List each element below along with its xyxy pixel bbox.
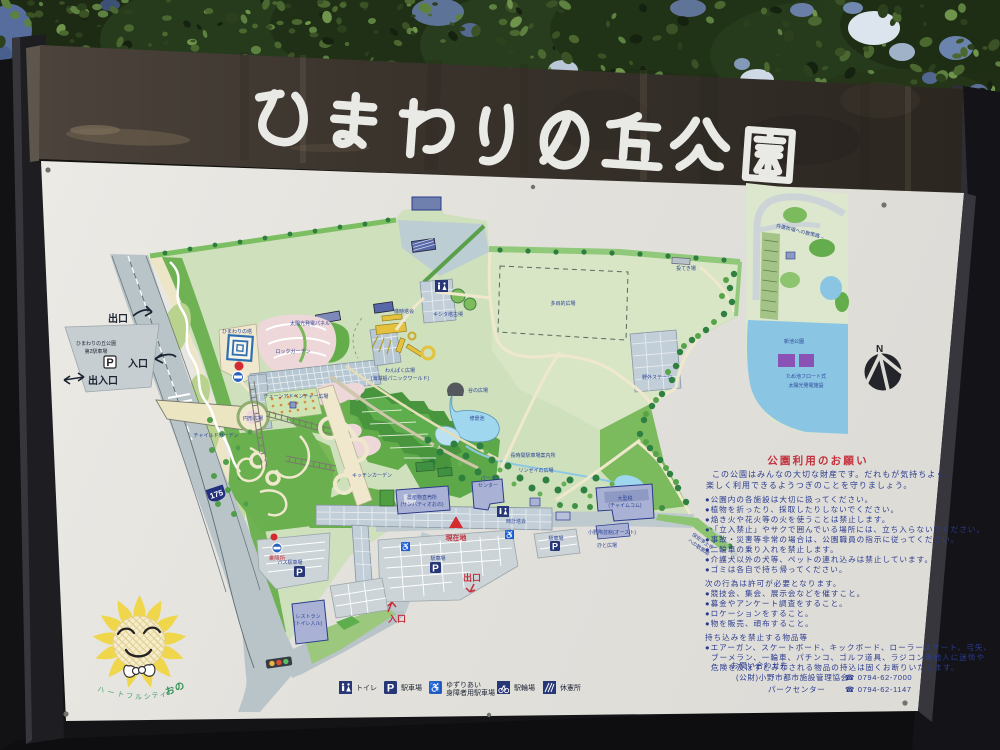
svg-text:チェーンアドベンチャー広場: チェーンアドベンチャー広場 [264, 393, 329, 400]
svg-text:ロックガーデン: ロックガーデン [275, 348, 310, 355]
svg-text:投てき場: 投てき場 [676, 265, 696, 272]
svg-text:円形広場: 円形広場 [243, 415, 263, 422]
svg-text:●ゴミは各自で持ち帰ってください。: ●ゴミは各自で持ち帰ってください。 [705, 564, 847, 574]
svg-text:P: P [296, 568, 303, 579]
svg-text:シ: シ [144, 694, 151, 701]
svg-text:♿: ♿ [429, 681, 441, 694]
svg-text:身障者用駅車場: 身障者用駅車場 [446, 688, 495, 697]
svg-text:この公園はみんなの大切な財産です。だれもが気持ちよく、: この公園はみんなの大切な財産です。だれもが気持ちよく、 [712, 469, 954, 479]
svg-text:●競技会、集会、展示会などを催すこと。: ●競技会、集会、展示会などを催すこと。 [705, 588, 865, 598]
svg-text:駅車場: 駅車場 [548, 535, 563, 542]
svg-text:♿: ♿ [505, 530, 515, 540]
svg-text:レストラン: レストラン [295, 614, 320, 620]
svg-text:P: P [106, 357, 113, 369]
svg-text:ひまわりの塔: ひまわりの塔 [222, 328, 252, 335]
svg-text:出口: 出口 [108, 312, 128, 325]
svg-text:●募金やアンケート調査をすること。: ●募金やアンケート調査をすること。 [705, 598, 848, 608]
svg-text:入口: 入口 [387, 614, 406, 624]
svg-text:●エアーガン、スケートボード、キックボード、ローラースケート: ●エアーガン、スケートボード、キックボード、ローラースケート、弓矢、 [705, 642, 992, 652]
svg-text:P: P [552, 542, 558, 552]
svg-text:●事故・災害等非常の場合は、公園職員の指示に従ってください。: ●事故・災害等非常の場合は、公園職員の指示に従ってください。 [705, 534, 959, 544]
svg-text:●ロケーションをすること。: ●ロケーションをすること。 [705, 609, 814, 618]
svg-text:♿: ♿ [401, 542, 411, 552]
svg-text:楽しく利用できるようつぎのことを守りましょう。: 楽しく利用できるようつぎのことを守りましょう。 [706, 480, 912, 490]
svg-text:刅と広場: 刅と広場 [597, 542, 617, 549]
svg-text:ため池フロート式: ため池フロート式 [786, 373, 826, 380]
svg-text:キシタ塔古堧: キシタ塔古堧 [433, 311, 463, 318]
svg-text:農産物直売所: 農産物直売所 [407, 494, 437, 501]
svg-text:持ち込みを禁止する物品等: 持ち込みを禁止する物品等 [705, 632, 808, 642]
svg-text:小野陶芸館(オースト): 小野陶芸館(オースト) [588, 529, 636, 536]
svg-text:●「立入禁止」やサクで囲んでいる場所には、立ち入らないでくだ: ●「立入禁止」やサクで囲んでいる場所には、立ち入らないでください。 [705, 524, 985, 534]
svg-text:ひまわりの丘公園: ひまわりの丘公園 [76, 340, 116, 347]
svg-text:バス駅車場: バス駅車場 [277, 559, 302, 566]
svg-text:(公財)小野市都市施設管理協会: (公財)小野市都市施設管理協会 [736, 672, 849, 682]
svg-text:入口: 入口 [128, 358, 148, 370]
svg-text:●二輪車の乗り入れを禁止します。: ●二輪車の乗り入れを禁止します。 [705, 544, 839, 554]
svg-text:休憲所: 休憲所 [560, 683, 581, 692]
svg-text:機時塔会: 機時塔会 [394, 308, 414, 315]
svg-text:キッチンカーデン: キッチンカーデン [352, 472, 392, 479]
svg-text:リンゼイの広場: リンゼイの広場 [518, 467, 553, 474]
svg-text:大型税: 大型税 [617, 495, 632, 502]
svg-text:●焔き火や花火等の火を使うことは禁止します。: ●焔き火や花火等の火を使うことは禁止します。 [705, 514, 890, 524]
svg-text:(海賊船パニックワールド): (海賊船パニックワールド) [371, 375, 430, 382]
svg-text:(チャイムコム): (チャイムコム) [608, 503, 642, 509]
svg-text:現在地: 現在地 [446, 533, 467, 542]
svg-text:パークセンター: パークセンター [768, 685, 825, 694]
svg-text:野外ステージ: 野外ステージ [642, 374, 672, 381]
svg-text:第2駅車場: 第2駅車場 [85, 348, 108, 355]
svg-text:パーク: パーク [480, 476, 495, 482]
svg-text:駅輪場: 駅輪場 [514, 683, 535, 692]
svg-text:P: P [387, 683, 394, 695]
svg-text:N: N [876, 344, 883, 355]
svg-text:修景池: 修景池 [469, 415, 484, 422]
svg-text:公園利用のお願い: 公園利用のお願い [767, 454, 869, 467]
svg-text:ト: ト [117, 691, 125, 699]
svg-text:太陽光発電施設: 太陽光発電施設 [788, 382, 823, 389]
svg-text:●物を販売、頑布すること。: ●物を販売、頑布すること。 [705, 618, 814, 628]
svg-text:トイレ: トイレ [356, 685, 377, 692]
svg-text:●介護犬以外の犬等、ペットの連れ込みは禁止しています。: ●介護犬以外の犬等、ペットの連れ込みは禁止しています。 [705, 554, 933, 564]
svg-text:出入口: 出入口 [88, 374, 118, 387]
svg-text:フ: フ [126, 692, 134, 700]
svg-text:お問い合わせ先: お問い合わせ先 [731, 660, 788, 670]
svg-text:わんぱく広場: わんぱく広場 [385, 367, 415, 374]
svg-text:テ: テ [151, 691, 159, 700]
svg-text:時計塔会: 時計塔会 [506, 518, 526, 525]
svg-text:P: P [432, 564, 439, 575]
svg-text:出口: 出口 [463, 572, 481, 583]
svg-text:ゆずりあい: ゆずりあい [446, 680, 481, 689]
svg-text:(トイレ入ル): (トイレ入ル) [294, 621, 323, 627]
svg-text:●公園内の各施設は大切に扱ってください。: ●公園内の各施設は大切に扱ってください。 [705, 494, 873, 504]
svg-text:多目的広場: 多目的広場 [550, 300, 575, 307]
svg-text:(サンパティオおの): (サンパティオおの) [400, 501, 443, 508]
svg-text:ー: ー [107, 689, 115, 697]
svg-text:新池公園: 新池公園 [784, 338, 804, 345]
svg-text:☎ 0794-62-1147: ☎ 0794-62-1147 [845, 685, 912, 694]
svg-text:センター: センター [478, 482, 498, 489]
svg-text:駅車場: 駅車場 [430, 555, 445, 562]
svg-text:☎ 0794-62-7000: ☎ 0794-62-7000 [845, 673, 912, 682]
svg-text:駅車場: 駅車場 [401, 683, 422, 692]
svg-text:ル: ル [135, 694, 142, 701]
svg-text:次の行為は許可が必要となります。: 次の行為は許可が必要となります。 [705, 578, 842, 588]
svg-text:太陽光発電パネル: 太陽光発電パネル [290, 320, 330, 327]
svg-text:長時間駅車場案内所: 長時間駅車場案内所 [510, 452, 555, 459]
svg-text:チャイルドガーデン: チャイルドガーデン [194, 432, 239, 439]
svg-text:谷の広場: 谷の広場 [468, 387, 488, 394]
svg-text:●植物を折ったり、採取したりしないでください。: ●植物を折ったり、採取したりしないでください。 [705, 504, 899, 514]
